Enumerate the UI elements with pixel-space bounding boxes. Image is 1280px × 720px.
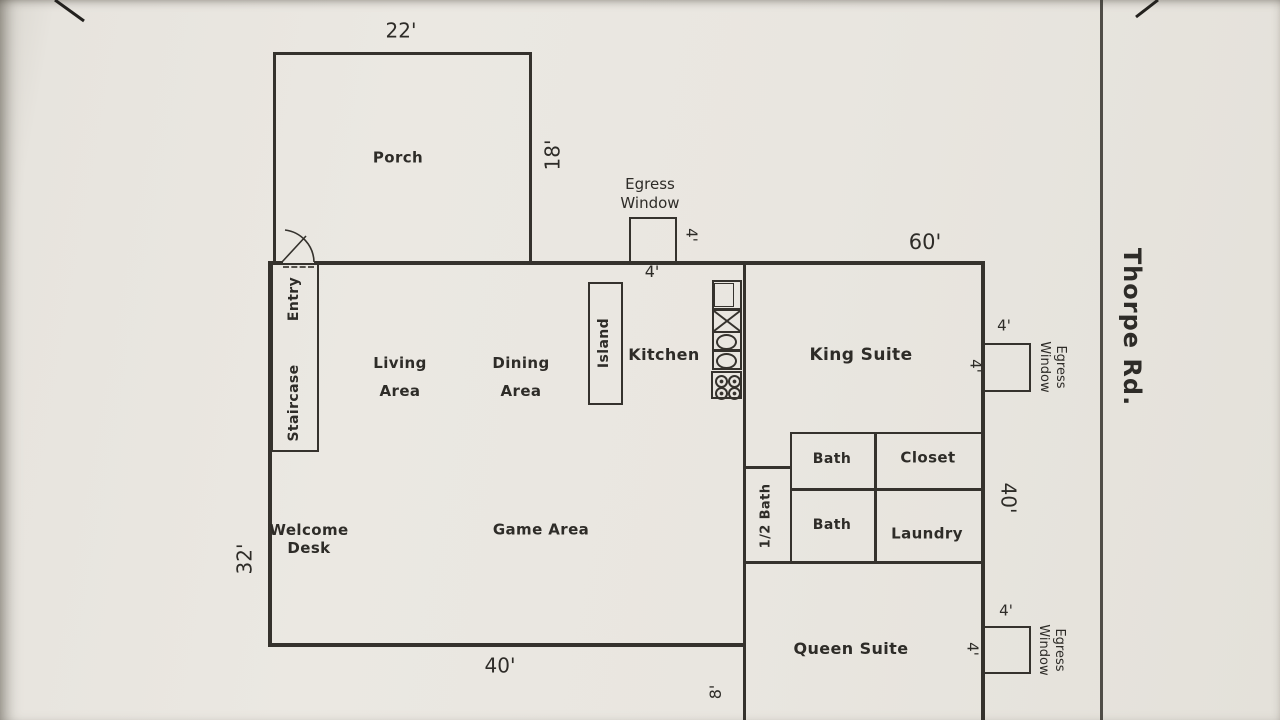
egress-queen-line2: Window xyxy=(1035,624,1051,675)
egress-top-width-dim: 4' xyxy=(645,263,660,281)
entry-label: Entry xyxy=(286,277,302,321)
welcome-desk-label: Welcome Desk xyxy=(269,521,348,557)
welcome-line2: Desk xyxy=(269,539,348,557)
egress-window-queen xyxy=(983,626,1031,674)
right-height-dim: 40' xyxy=(997,483,1020,514)
left-height-dim: 32' xyxy=(234,544,257,575)
kitchen-label: Kitchen xyxy=(628,346,699,364)
laundry-label: Laundry xyxy=(891,525,963,542)
stove-burner-4 xyxy=(728,387,741,400)
egress-window-top-label: Egress Window xyxy=(620,175,679,213)
page-corner-mark-top-right xyxy=(1130,0,1164,22)
egress-top-line2: Window xyxy=(620,194,679,213)
welcome-line1: Welcome xyxy=(269,521,348,539)
dining-area-label: Dining Area xyxy=(492,349,549,405)
bath-block-horizontal-divider xyxy=(790,488,982,491)
egress-king-depth-dim: 4' xyxy=(997,317,1011,334)
sink-bowl-1 xyxy=(716,334,737,350)
floor-plan-scan: Thorpe Rd. Porch 22' 18' Entry Staircase… xyxy=(0,0,1280,720)
porch-depth-dim: 18' xyxy=(542,140,565,171)
road-name-label: Thorpe Rd. xyxy=(1117,248,1145,406)
living-line2: Area xyxy=(373,377,426,405)
living-line1: Living xyxy=(373,349,426,377)
king-suite-label: King Suite xyxy=(809,346,912,366)
egress-king-line1: Egress xyxy=(1052,341,1068,392)
closet-label: Closet xyxy=(900,449,955,466)
wall-bottom-game-area xyxy=(268,643,746,647)
egress-king-width-dim: 4' xyxy=(966,359,983,373)
queen-side-offset-dim: 8' xyxy=(707,685,725,700)
cabinet-x-lines xyxy=(712,309,742,333)
game-area-label: Game Area xyxy=(493,521,589,538)
fridge-door-detail xyxy=(714,283,734,307)
bath-bottom-label: Bath xyxy=(813,517,851,533)
staircase-label: Staircase xyxy=(286,364,302,441)
page-corner-mark-top-left xyxy=(50,0,90,26)
egress-top-line1: Egress xyxy=(620,175,679,194)
egress-window-top xyxy=(629,217,677,264)
living-area-label: Living Area xyxy=(373,349,426,405)
bottom-width-dim: 40' xyxy=(485,655,516,678)
wall-kitchen-suite-divider xyxy=(743,261,746,720)
island-label: Island xyxy=(596,318,612,368)
egress-top-depth-dim: 4' xyxy=(682,228,699,242)
stove-burner-3 xyxy=(715,387,728,400)
egress-window-king-label: Egress Window xyxy=(1036,341,1068,392)
door-swing-icon xyxy=(276,224,320,266)
egress-window-king xyxy=(983,343,1031,392)
bath-block-vertical-divider xyxy=(874,432,877,562)
main-top-width-dim: 60' xyxy=(909,230,942,254)
egress-queen-line1: Egress xyxy=(1051,624,1067,675)
road-boundary-line xyxy=(1100,0,1103,720)
queen-suite-label: Queen Suite xyxy=(794,640,909,658)
egress-king-line2: Window xyxy=(1036,341,1052,392)
half-bath-top-wall xyxy=(745,466,791,469)
dining-line2: Area xyxy=(492,377,549,405)
bath-top-label: Bath xyxy=(813,451,851,467)
half-bath-label: 1/2 Bath xyxy=(760,484,775,549)
egress-window-queen-label: Egress Window xyxy=(1035,624,1067,675)
egress-queen-width-dim: 4' xyxy=(963,642,980,656)
sink-bowl-2 xyxy=(716,353,737,369)
porch-width-dim: 22' xyxy=(386,20,417,43)
porch-label: Porch xyxy=(373,149,423,166)
egress-queen-depth-dim: 4' xyxy=(999,602,1013,619)
wall-top xyxy=(270,261,985,265)
dining-line1: Dining xyxy=(492,349,549,377)
